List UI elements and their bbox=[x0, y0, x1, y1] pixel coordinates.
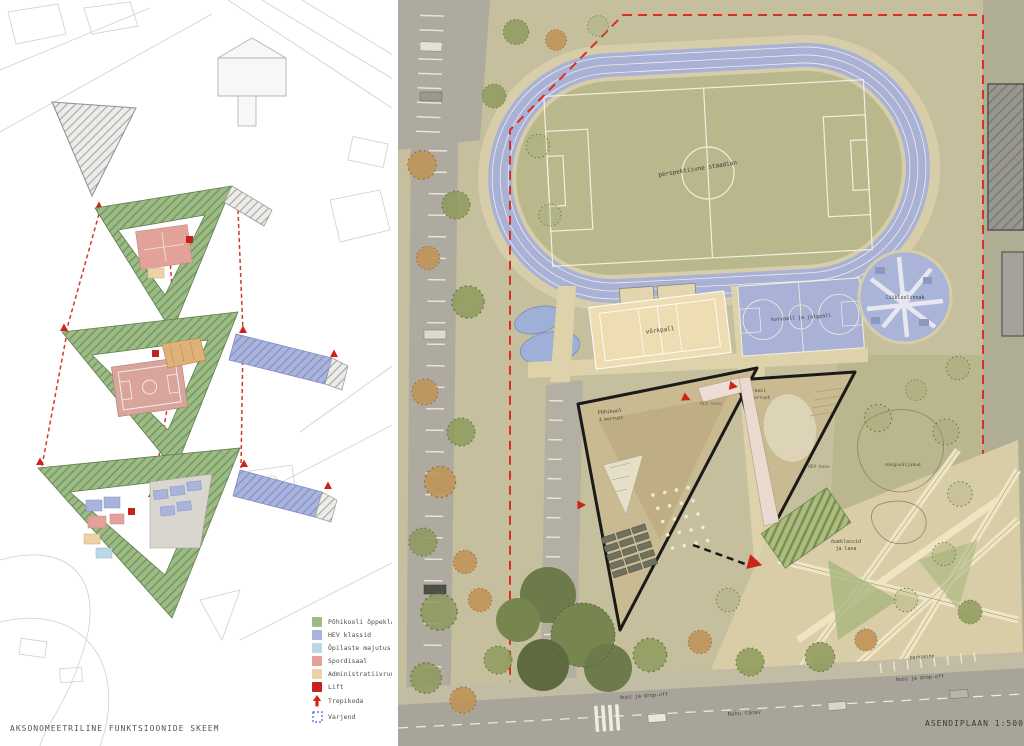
site-plan-caption: ASENDIPLAAN 1:500 bbox=[925, 719, 1024, 728]
legend-swatch bbox=[312, 630, 322, 640]
legend-item: Põhikooli õppeklassid bbox=[312, 615, 398, 628]
lift-1 bbox=[128, 508, 135, 515]
site-plan-panel: perspektiivne staadion bbox=[398, 0, 1024, 746]
gable-building-sketch bbox=[218, 38, 286, 126]
shelter-dashed-icon bbox=[312, 711, 323, 723]
legend-label: Trepikoda bbox=[328, 697, 363, 705]
outdoor-classes-label-2: ja lava bbox=[835, 546, 856, 552]
legend-label: Õpilaste majutus bbox=[328, 644, 391, 652]
legend-swatch bbox=[312, 617, 322, 627]
legend-item: Trepikoda bbox=[312, 693, 398, 709]
legend-item: Lift bbox=[312, 680, 398, 693]
basketball-court: korvpall ja jalgpall bbox=[738, 278, 865, 356]
axonometric-panel: Põhikooli õppeklassid HEV klassid Õpilas… bbox=[0, 0, 398, 746]
hev-yard-label-upper: HEV-hoov bbox=[700, 401, 722, 407]
floor-3 bbox=[95, 186, 272, 332]
legend-swatch bbox=[312, 643, 322, 653]
legend-swatch bbox=[312, 682, 322, 692]
architecture-board: Põhikooli õppeklassid HEV klassid Õpilas… bbox=[0, 0, 1024, 746]
floor-2 bbox=[62, 312, 348, 470]
legend-label: HEV klassid bbox=[328, 631, 371, 639]
legend-label: Varjend bbox=[328, 713, 355, 721]
stair-arrow-icon bbox=[312, 695, 322, 707]
lift-2 bbox=[152, 350, 159, 357]
lift-3 bbox=[186, 236, 193, 243]
stadium-infield bbox=[511, 66, 907, 280]
traffic-playground: liikluslinnak bbox=[859, 251, 951, 343]
legend-label: Spordisaal bbox=[328, 657, 367, 665]
legend-item: HEV klassid bbox=[312, 628, 398, 641]
legend-swatch bbox=[312, 656, 322, 666]
tribune-sketch bbox=[52, 102, 136, 196]
parking-lot-northwest bbox=[398, 0, 490, 150]
axonometric-caption: AKSONOMEETRILINE FUNKTSIOONIDE SKEEM bbox=[10, 724, 219, 733]
legend-item: Administratiivruumid bbox=[312, 667, 398, 680]
legend-label: Lift bbox=[328, 683, 344, 691]
legend-item: Õpilaste majutus bbox=[312, 641, 398, 654]
legend-swatch bbox=[312, 669, 322, 679]
legend: Põhikooli õppeklassid HEV klassid Õpilas… bbox=[312, 615, 398, 725]
floor-1 bbox=[38, 448, 337, 618]
hev-yard-label-lower: HEV-hoov bbox=[808, 464, 830, 470]
legend-item: Varjend bbox=[312, 709, 398, 725]
site-plan-drawing: perspektiivne staadion bbox=[398, 0, 1024, 746]
legend-item: Spordisaal bbox=[312, 654, 398, 667]
traffic-playground-label: liikluslinnak bbox=[885, 295, 924, 301]
playgrounds-label: mänguväljakud bbox=[885, 462, 921, 468]
outdoor-classes-label-1: õueklassid bbox=[831, 539, 861, 545]
